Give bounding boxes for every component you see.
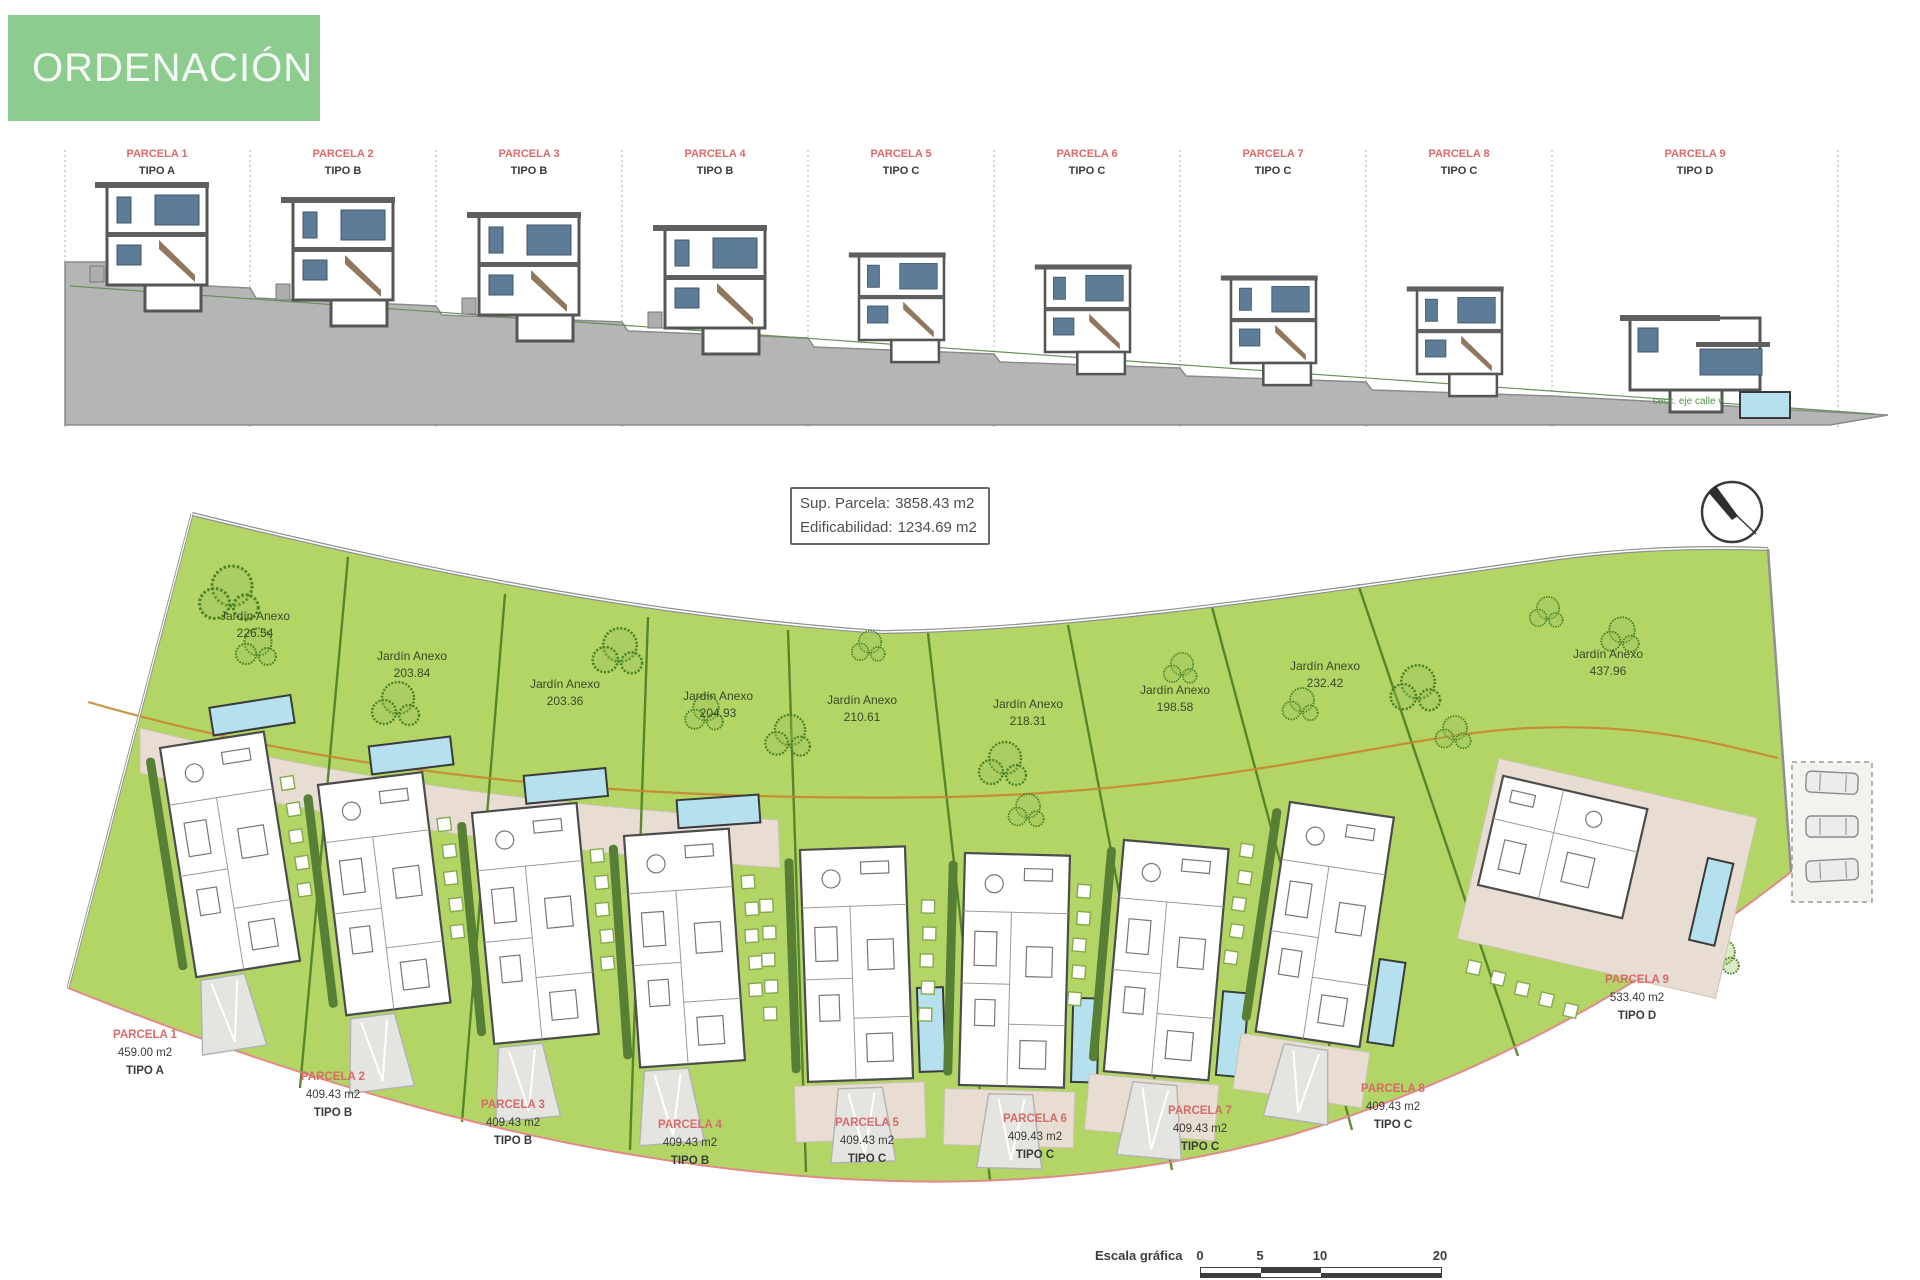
garden-label: Jardín Anexo <box>827 693 897 707</box>
elevation-parcel-name: PARCELA 4 <box>684 148 746 160</box>
parcel-area: 409.43 m2 <box>663 1137 717 1149</box>
garden-label: Jardín Anexo <box>530 677 600 691</box>
elevation-parcel-name: PARCELA 3 <box>498 148 559 160</box>
elevation-parcel-tipo: TIPO A <box>139 165 175 177</box>
section-note: secc. eje calle v <box>1653 396 1724 407</box>
section-pool <box>1740 392 1790 418</box>
parcel-tipo: TIPO B <box>314 1107 352 1119</box>
parcel-name: PARCELA 1 <box>113 1029 178 1041</box>
scale-bar: Escala gráfica 0 5 10 20 <box>1095 1244 1475 1280</box>
ordenacion-sheet: secc. eje calle v PARCELA 1 TIPO A PARCE… <box>0 0 1920 1280</box>
elevation-parcel-tipo: TIPO C <box>1069 165 1106 177</box>
parcel-name: PARCELA 5 <box>835 1117 900 1129</box>
garden-label: Jardín Anexo <box>1140 683 1210 697</box>
scale-tick: 0 <box>1196 1248 1203 1263</box>
parcel-area: 409.43 m2 <box>1173 1123 1227 1135</box>
info-label: Edificabilidad: <box>800 516 893 540</box>
elevation-parcel-tipo: TIPO B <box>697 165 734 177</box>
info-label: Sup. Parcela: <box>800 492 890 516</box>
elevation-parcel-tipo: TIPO D <box>1677 165 1714 177</box>
garden-label: Jardín Anexo <box>1573 647 1643 661</box>
parcel-area: 459.00 m2 <box>118 1047 172 1059</box>
garden-area: 210.61 <box>844 710 881 724</box>
garden-label: Jardín Anexo <box>220 609 290 623</box>
elevation-parcel-tipo: TIPO C <box>883 165 920 177</box>
scale-bar-graphic <box>1200 1267 1442 1278</box>
garden-area: 437.96 <box>1590 664 1627 678</box>
elevation-parcel-name: PARCELA 9 <box>1664 148 1725 160</box>
site-plan: Jardín Anexo 226.54 Jardín Anexo 203.84 … <box>68 482 1872 1182</box>
garden-label: Jardín Anexo <box>683 689 753 703</box>
garden-label: Jardín Anexo <box>1290 659 1360 673</box>
parcel-area: 409.43 m2 <box>306 1089 360 1101</box>
info-value: 3858.43 m2 <box>895 492 974 516</box>
garden-area: 232.42 <box>1307 676 1344 690</box>
parcel-tipo: TIPO C <box>1181 1141 1219 1153</box>
page-title: ORDENACIÓN <box>8 15 320 121</box>
parcel-area: 409.43 m2 <box>1008 1131 1062 1143</box>
parcel-tipo: TIPO C <box>1374 1119 1412 1131</box>
garden-label: Jardín Anexo <box>993 697 1063 711</box>
site-drawing: secc. eje calle v PARCELA 1 TIPO A PARCE… <box>0 0 1920 1280</box>
parking-area <box>1792 762 1872 902</box>
elevation-parcel-name: PARCELA 2 <box>312 148 373 160</box>
elevation-parcel-name: PARCELA 7 <box>1242 148 1303 160</box>
parcel-tipo: TIPO D <box>1618 1010 1656 1022</box>
elevation-parcel-name: PARCELA 6 <box>1056 148 1117 160</box>
elevation-parcel-labels: PARCELA 1 TIPO A PARCELA 2 TIPO B PARCEL… <box>126 148 1725 177</box>
elevation-parcel-tipo: TIPO B <box>511 165 548 177</box>
parcel-name: PARCELA 4 <box>658 1119 723 1131</box>
elevation-parcel-tipo: TIPO C <box>1255 165 1292 177</box>
elevation-parcel-name: PARCELA 1 <box>126 148 187 160</box>
garden-area: 204.93 <box>700 706 737 720</box>
elevation-parcel-tipo: TIPO C <box>1441 165 1478 177</box>
parcel-name: PARCELA 8 <box>1361 1083 1426 1095</box>
parcel-area: 409.43 m2 <box>840 1135 894 1147</box>
scale-tick: 20 <box>1433 1248 1447 1263</box>
garden-label: Jardín Anexo <box>377 649 447 663</box>
parcel-tipo: TIPO B <box>494 1135 532 1147</box>
parcel-name: PARCELA 6 <box>1003 1113 1067 1125</box>
elevation-parcel-tipo: TIPO B <box>325 165 362 177</box>
elevation-parcel-name: PARCELA 5 <box>870 148 931 160</box>
parcel-tipo: TIPO A <box>126 1065 164 1077</box>
parcel-name: PARCELA 2 <box>301 1071 365 1083</box>
garden-area: 218.31 <box>1010 714 1047 728</box>
parcel-area: 409.43 m2 <box>1366 1101 1420 1113</box>
scale-bar-label: Escala gráfica <box>1095 1248 1182 1263</box>
scale-tick: 5 <box>1256 1248 1263 1263</box>
garden-area: 203.36 <box>547 694 584 708</box>
info-box: Sup. Parcela: 3858.43 m2 Edificabilidad:… <box>790 487 990 545</box>
elevation-parcel-name: PARCELA 8 <box>1428 148 1489 160</box>
scale-tick: 10 <box>1313 1248 1327 1263</box>
elevation-section: secc. eje calle v PARCELA 1 TIPO A PARCE… <box>65 148 1888 428</box>
parcel-name: PARCELA 3 <box>481 1099 545 1111</box>
garden-area: 203.84 <box>394 666 431 680</box>
garden-area: 198.58 <box>1157 700 1194 714</box>
info-value: 1234.69 m2 <box>898 516 977 540</box>
north-arrow-icon <box>1702 482 1762 542</box>
parcel-name: PARCELA 7 <box>1168 1105 1232 1117</box>
parcel-tipo: TIPO C <box>1016 1149 1054 1161</box>
parcel-area: 533.40 m2 <box>1610 992 1664 1004</box>
garden-area: 226.54 <box>237 626 274 640</box>
parcel-tipo: TIPO C <box>848 1153 886 1165</box>
parcel-tipo: TIPO B <box>671 1155 709 1167</box>
parcel-area: 409.43 m2 <box>486 1117 540 1129</box>
parcel-name: PARCELA 9 <box>1605 974 1669 986</box>
